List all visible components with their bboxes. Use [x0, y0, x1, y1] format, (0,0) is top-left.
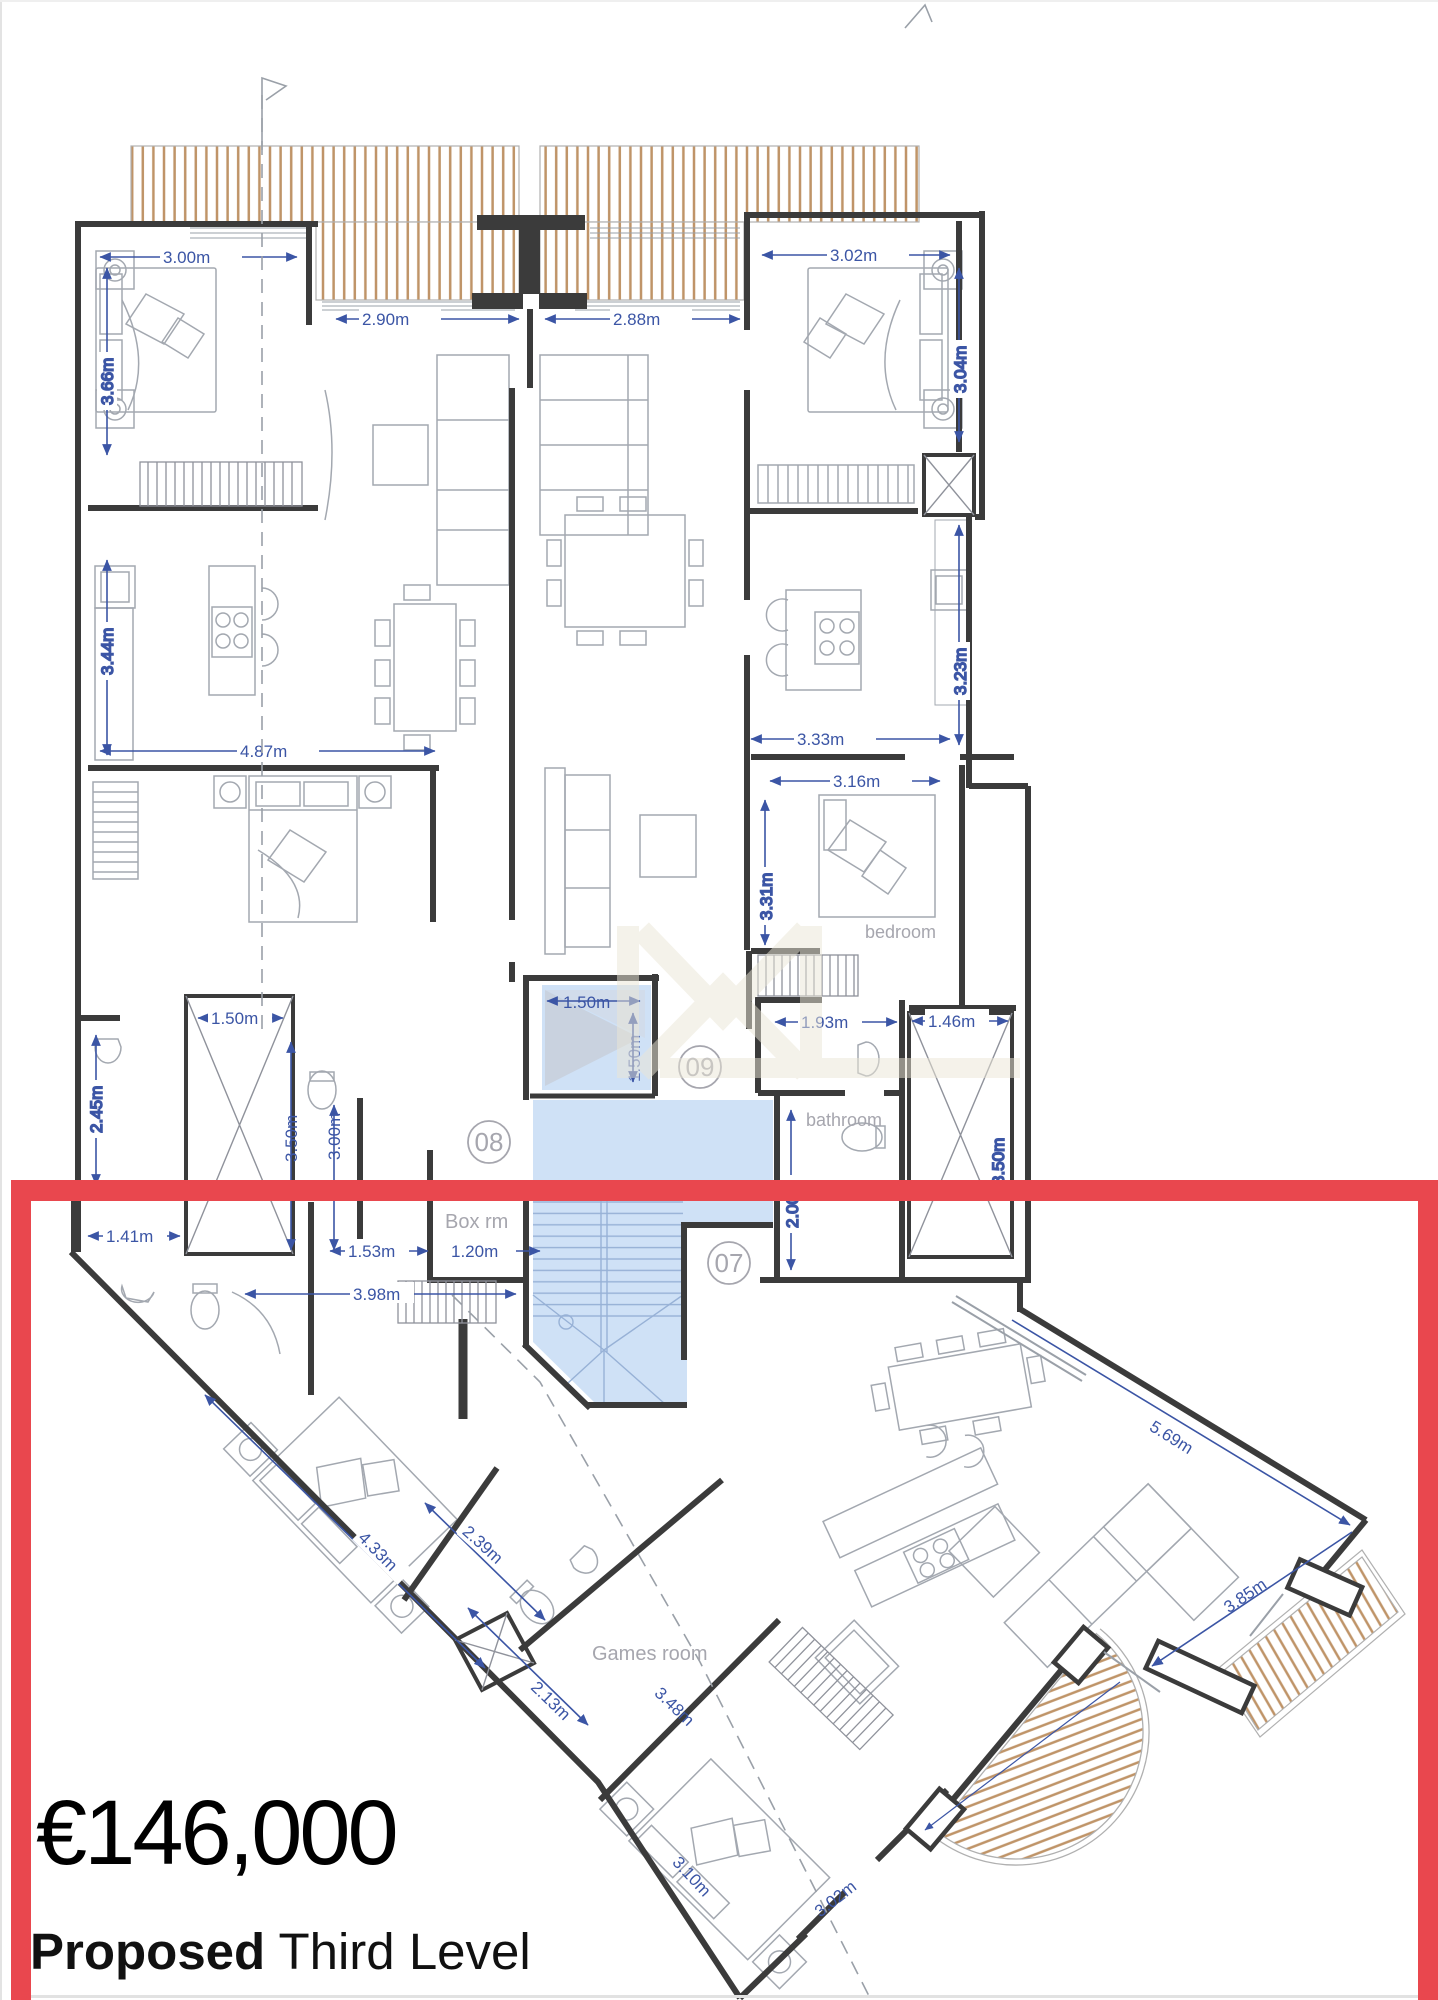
svg-text:3.23m: 3.23m: [951, 648, 970, 695]
svg-text:1.20m: 1.20m: [451, 1242, 498, 1261]
svg-text:3.98m: 3.98m: [353, 1285, 400, 1304]
svg-text:1.50m: 1.50m: [211, 1009, 258, 1028]
svg-text:3.00m: 3.00m: [163, 248, 210, 267]
svg-text:2.90m: 2.90m: [362, 310, 409, 329]
svg-text:1.46m: 1.46m: [928, 1012, 975, 1031]
svg-text:3.50m: 3.50m: [282, 1115, 301, 1162]
svg-text:1.50m: 1.50m: [563, 993, 610, 1012]
svg-text:1.53m: 1.53m: [348, 1242, 395, 1261]
svg-text:3.16m: 3.16m: [833, 772, 880, 791]
svg-text:4.87m: 4.87m: [240, 742, 287, 761]
svg-text:bathroom: bathroom: [806, 1110, 882, 1130]
svg-text:3.02m: 3.02m: [830, 246, 877, 265]
svg-text:3.50m: 3.50m: [989, 1138, 1008, 1185]
svg-text:1.41m: 1.41m: [106, 1227, 153, 1246]
svg-text:Proposed Third Level: Proposed Third Level: [30, 1923, 531, 1980]
svg-text:Games room: Games room: [592, 1643, 708, 1665]
svg-text:3.66m: 3.66m: [98, 358, 117, 405]
svg-text:08: 08: [475, 1127, 504, 1157]
svg-text:€146,000: €146,000: [36, 1782, 396, 1884]
svg-text:3.44m: 3.44m: [98, 628, 117, 675]
svg-text:Box rm: Box rm: [445, 1211, 508, 1233]
svg-text:3.00m: 3.00m: [325, 1113, 344, 1160]
svg-text:3.31m: 3.31m: [757, 873, 776, 920]
svg-text:3.04m: 3.04m: [951, 346, 970, 393]
svg-text:3.33m: 3.33m: [797, 730, 844, 749]
svg-text:2.88m: 2.88m: [613, 310, 660, 329]
svg-text:bedroom: bedroom: [865, 922, 936, 942]
svg-text:07: 07: [715, 1248, 744, 1278]
svg-text:2.45m: 2.45m: [87, 1086, 106, 1133]
